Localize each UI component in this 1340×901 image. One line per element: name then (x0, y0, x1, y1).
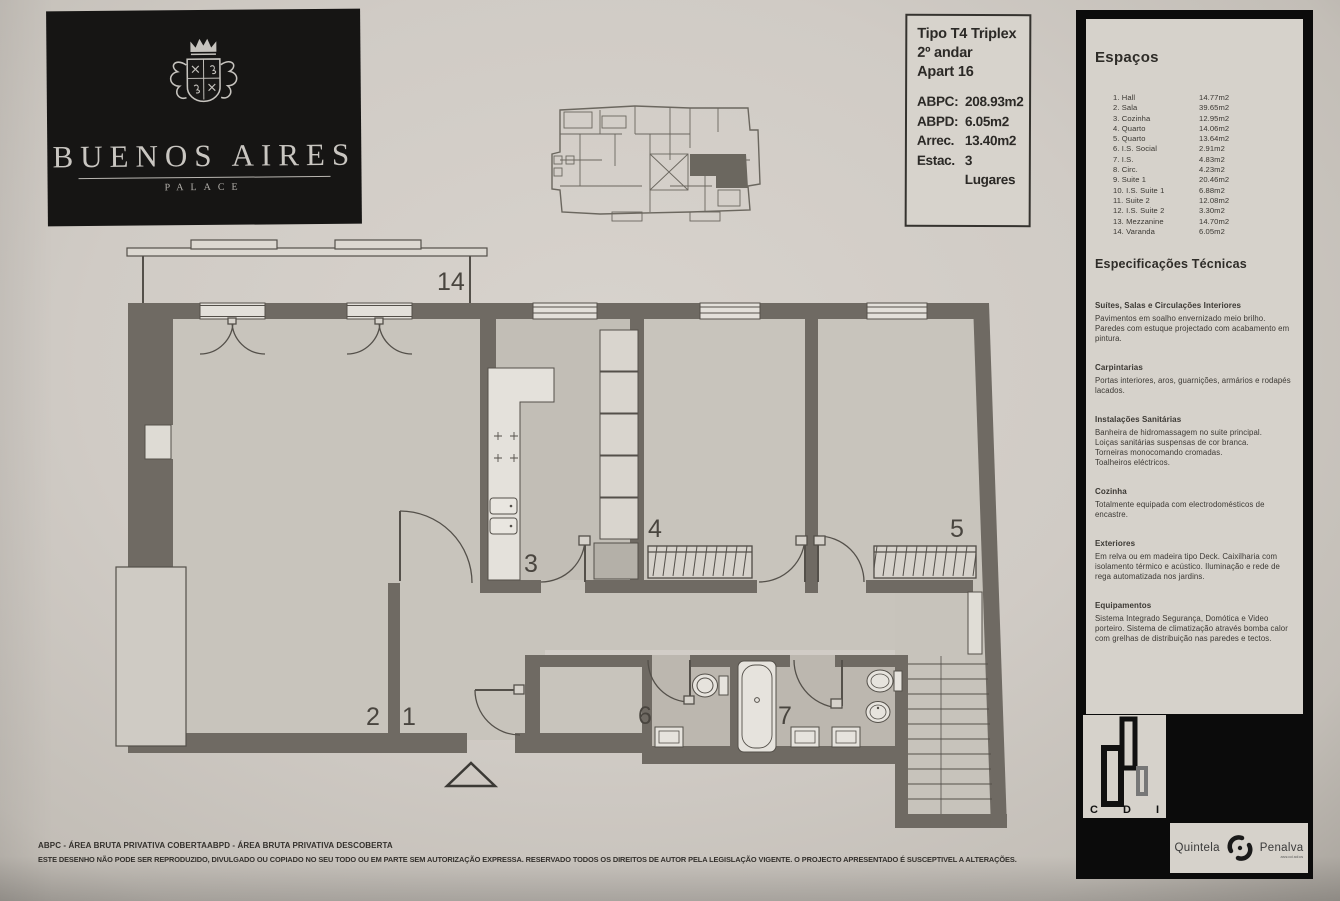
svg-text:C: C (1090, 804, 1098, 816)
agency-name-quintela: Quintela (1175, 842, 1220, 854)
crest-icon (138, 35, 269, 136)
spec-section: EquipamentosSistema Integrado Segurança,… (1095, 601, 1292, 644)
space-row: 5. Quarto13.64m2 (1113, 134, 1285, 144)
spec-section: CozinhaTotalmente equipada com electrodo… (1095, 487, 1292, 520)
logo-subtitle: PALACE (165, 182, 245, 194)
balcony (127, 240, 487, 303)
planter (116, 567, 186, 746)
space-row: 11. Suite 212.08m2 (1113, 196, 1285, 206)
footer-abbr-abpd: ABPD - ÁREA BRUTA PRIVATIVA DESCOBERTA (207, 841, 393, 850)
svg-text:I: I (1156, 804, 1159, 816)
spec-section: CarpintariasPortas interiores, aros, gua… (1095, 363, 1292, 396)
wall-niche (145, 425, 171, 459)
key-plan (540, 94, 772, 234)
room-label-is-social: 6 (638, 702, 652, 730)
space-row: 12. I.S. Suite 23.30m2 (1113, 206, 1285, 216)
svg-text:D: D (1123, 804, 1131, 816)
metric-estac: Estac. 3 Lugares (917, 150, 1025, 189)
space-row: 9. Suite 120.46m2 (1113, 175, 1285, 185)
space-row: 13. Mezzanine14.70m2 (1113, 217, 1285, 227)
space-row: 3. Cozinha12.95m2 (1113, 114, 1285, 124)
room-label-is: 7 (778, 702, 792, 730)
footer-legal-text: ESTE DESENHO NÃO PODE SER REPRODUZIDO, D… (38, 855, 1017, 864)
spec-panel-card: Espaços 1. Hall14.77m22. Sala39.65m23. C… (1086, 19, 1303, 714)
cdi-logo-box: C D I (1083, 715, 1166, 818)
unit-number: Apart 16 (917, 63, 1025, 82)
spec-section: ExterioresEm relva ou em madeira tipo De… (1095, 539, 1292, 582)
room-label-hall: 1 (402, 703, 416, 731)
specs-sections: Suítes, Salas e Circulações InterioresPa… (1095, 301, 1292, 663)
room-label-quarto5: 5 (950, 515, 964, 543)
space-row: 14. Varanda6.05m2 (1113, 227, 1285, 237)
agency-sub: associados (1280, 854, 1303, 859)
unit-metrics: ABPC: 208.93m2 ABPD: 6.05m2 Arrec. 13.40… (917, 92, 1025, 190)
unit-info-box: Tipo T4 Triplex 2º andar Apart 16 ABPC: … (905, 14, 1032, 227)
logo-rule (79, 176, 331, 179)
space-row: 10. I.S. Suite 16.88m2 (1113, 186, 1285, 196)
room-label-cozinha: 3 (524, 550, 538, 578)
specs-title: Especificações Técnicas (1095, 257, 1247, 271)
spec-section: Instalações SanitáriasBanheira de hidrom… (1095, 415, 1292, 468)
room-label-quarto4: 4 (648, 515, 662, 543)
unit-type: Tipo T4 Triplex (917, 25, 1025, 44)
space-row: 8. Circ.4.23m2 (1113, 165, 1285, 175)
logo-title: BUENOS AIRES (52, 137, 356, 176)
metric-abpc: ABPC: 208.93m2 (917, 92, 1025, 112)
cdi-logo-icon: C D I (1083, 715, 1166, 818)
spaces-list: 1. Hall14.77m22. Sala39.65m23. Cozinha12… (1113, 93, 1285, 237)
agency-name-penalva: Penalva associados (1260, 842, 1304, 854)
agency-swirl-icon (1227, 834, 1253, 862)
spaces-title: Espaços (1095, 49, 1159, 66)
space-row: 2. Sala39.65m2 (1113, 103, 1285, 113)
metric-abpd: ABPD: 6.05m2 (917, 111, 1025, 131)
footer-abbr-abpc: ABPC - ÁREA BRUTA PRIVATIVA COBERTA (38, 841, 207, 850)
space-row: 4. Quarto14.06m2 (1113, 124, 1285, 134)
agency-logo-box: Quintela Penalva associados (1170, 823, 1308, 873)
space-row: 6. I.S. Social2.91m2 (1113, 144, 1285, 154)
space-row: 1. Hall14.77m2 (1113, 93, 1285, 103)
spec-section: Suítes, Salas e Circulações InterioresPa… (1095, 301, 1292, 344)
spec-panel: Espaços 1. Hall14.77m22. Sala39.65m23. C… (1076, 10, 1313, 879)
entrance-marker-icon (447, 763, 495, 786)
room-label-varanda: 14 (437, 268, 465, 296)
metric-arrec: Arrec. 13.40m2 (917, 131, 1025, 151)
floor-plan: 14 2 1 3 4 5 6 7 (105, 236, 1015, 836)
floor-plan-svg: 14 2 1 3 4 5 6 7 (105, 236, 1015, 836)
developer-logo-box: BUENOS AIRES PALACE (46, 9, 362, 227)
space-row: 7. I.S.4.83m2 (1113, 155, 1285, 165)
room-label-sala: 2 (366, 703, 380, 731)
unit-floor: 2º andar (917, 44, 1025, 63)
